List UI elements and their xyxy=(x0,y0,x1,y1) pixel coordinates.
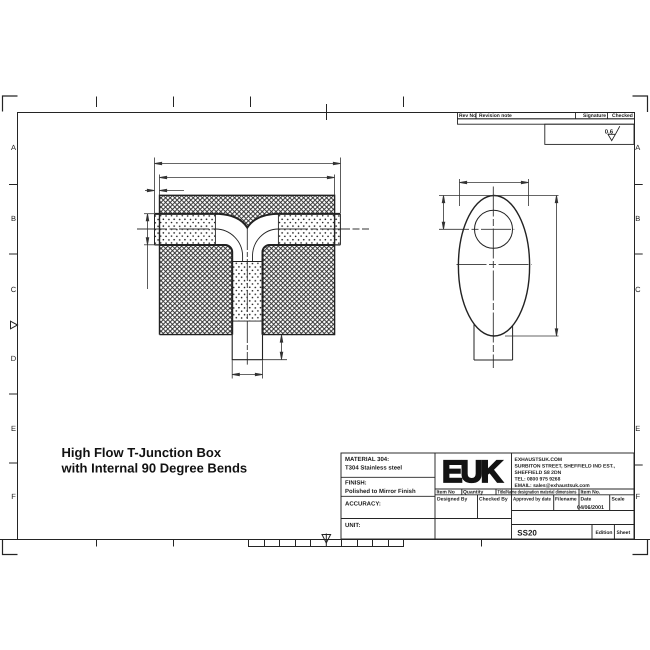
svg-text:EMAIL: sales@exhaustsuk.com: EMAIL: sales@exhaustsuk.com xyxy=(515,483,591,489)
svg-text:SHEFFIELD S8 2DN: SHEFFIELD S8 2DN xyxy=(515,470,562,476)
svg-text:Filename: Filename xyxy=(555,497,577,503)
svg-text:FINISH:: FINISH: xyxy=(345,480,367,487)
svg-text:D: D xyxy=(11,354,17,363)
svg-text:Title/Name designation materia: Title/Name designation material dimensio… xyxy=(498,490,577,496)
svg-text:Item No.: Item No. xyxy=(581,490,601,496)
svg-text:E: E xyxy=(11,424,16,433)
svg-text:A: A xyxy=(11,143,16,152)
svg-text:B: B xyxy=(11,214,16,223)
svg-text:E: E xyxy=(635,424,640,433)
svg-text:Quantity: Quantity xyxy=(463,490,483,496)
svg-text:B: B xyxy=(635,214,640,223)
svg-text:EUK: EUK xyxy=(442,454,504,489)
svg-text:Edition: Edition xyxy=(596,530,613,536)
svg-text:SURBITON STREET, SHEFFIELD IND: SURBITON STREET, SHEFFIELD IND EST., xyxy=(515,464,616,470)
svg-text:Designed By: Designed By xyxy=(437,497,468,503)
svg-text:TEL: 0800 975 9268: TEL: 0800 975 9268 xyxy=(515,477,561,483)
svg-text:Date: Date xyxy=(581,497,592,503)
svg-text:High Flow T-Junction Box: High Flow T-Junction Box xyxy=(62,445,222,460)
svg-text:C: C xyxy=(11,285,17,294)
svg-text:A: A xyxy=(635,143,640,152)
svg-text:F: F xyxy=(11,492,16,501)
svg-text:F: F xyxy=(636,492,641,501)
svg-text:with Internal 90 Degree Bends: with Internal 90 Degree Bends xyxy=(61,461,248,476)
svg-text:Revision note: Revision note xyxy=(479,113,512,119)
svg-text:MATERIAL 304:: MATERIAL 304: xyxy=(345,456,389,463)
svg-text:Checked By: Checked By xyxy=(479,497,508,503)
svg-text:UNIT:: UNIT: xyxy=(345,522,360,529)
svg-text:Checked: Checked xyxy=(612,113,633,119)
svg-text:C: C xyxy=(635,285,641,294)
svg-text:EXHAUSTSUK.COM: EXHAUSTSUK.COM xyxy=(515,457,563,463)
svg-text:04/06/2001: 04/06/2001 xyxy=(577,505,604,511)
svg-text:SS20: SS20 xyxy=(517,528,537,537)
svg-text:Item No: Item No xyxy=(437,490,455,496)
svg-text:ACCURACY:: ACCURACY: xyxy=(345,501,381,508)
svg-text:Polished to Mirror Finish: Polished to Mirror Finish xyxy=(345,488,416,495)
svg-text:Signature: Signature xyxy=(583,113,606,119)
svg-text:Approved by date: Approved by date xyxy=(513,497,551,503)
svg-text:Rev No: Rev No xyxy=(459,113,476,119)
svg-text:T304 Stainless steel: T304 Stainless steel xyxy=(345,465,402,472)
svg-text:Sheet: Sheet xyxy=(617,530,631,536)
svg-text:Scale: Scale xyxy=(612,497,625,503)
